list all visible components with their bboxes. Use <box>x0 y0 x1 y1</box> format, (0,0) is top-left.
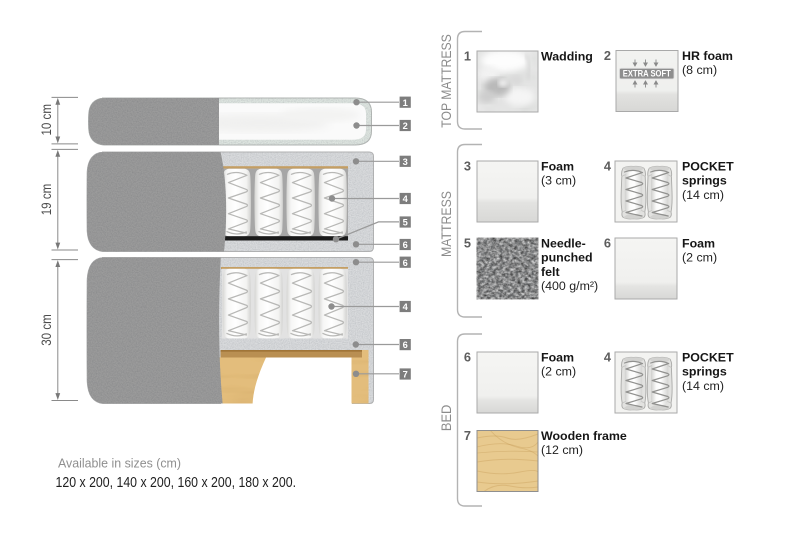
svg-text:5: 5 <box>403 218 408 228</box>
svg-text:Foam: Foam <box>541 351 574 365</box>
svg-text:(2 cm): (2 cm) <box>541 365 576 379</box>
svg-text:TOP MATTRESS: TOP MATTRESS <box>439 34 454 128</box>
svg-text:springs: springs <box>682 365 727 379</box>
svg-text:(14 cm): (14 cm) <box>682 379 724 393</box>
svg-text:6: 6 <box>604 236 611 251</box>
svg-text:Available in sizes (cm): Available in sizes (cm) <box>58 456 181 471</box>
svg-text:(2 cm): (2 cm) <box>682 251 717 265</box>
svg-text:7: 7 <box>403 370 408 380</box>
svg-text:EXTRA SOFT: EXTRA SOFT <box>623 67 671 78</box>
svg-text:4: 4 <box>403 194 409 204</box>
svg-text:1: 1 <box>403 98 408 108</box>
svg-text:6: 6 <box>403 258 408 268</box>
svg-text:(400 g/m²): (400 g/m²) <box>541 279 598 293</box>
svg-text:4: 4 <box>604 350 612 365</box>
svg-text:4: 4 <box>604 159 612 174</box>
svg-text:4: 4 <box>403 302 409 312</box>
svg-text:19 cm: 19 cm <box>38 184 54 216</box>
svg-text:springs: springs <box>682 174 727 188</box>
svg-text:3: 3 <box>403 157 408 167</box>
svg-text:(8 cm): (8 cm) <box>682 63 717 77</box>
svg-text:10 cm: 10 cm <box>38 104 54 136</box>
svg-text:(14 cm): (14 cm) <box>682 188 724 202</box>
svg-text:2: 2 <box>403 121 408 131</box>
svg-text:Foam: Foam <box>682 237 715 251</box>
svg-text:6: 6 <box>464 350 471 365</box>
svg-text:(3 cm): (3 cm) <box>541 174 576 188</box>
svg-text:30 cm: 30 cm <box>38 314 54 346</box>
svg-text:Foam: Foam <box>541 160 574 174</box>
svg-text:6: 6 <box>403 240 408 250</box>
svg-text:BED: BED <box>439 404 454 431</box>
svg-text:POCKET: POCKET <box>682 351 734 365</box>
svg-text:Wadding: Wadding <box>541 50 593 64</box>
svg-text:HR foam: HR foam <box>682 49 733 63</box>
svg-text:Wooden frame: Wooden frame <box>541 429 627 443</box>
svg-text:POCKET: POCKET <box>682 160 734 174</box>
svg-text:120 x 200, 140 x 200, 160 x 20: 120 x 200, 140 x 200, 160 x 200, 180 x 2… <box>56 474 297 491</box>
svg-text:5: 5 <box>464 236 471 251</box>
svg-text:Needle-: Needle- <box>541 237 586 251</box>
svg-text:(12 cm): (12 cm) <box>541 443 583 457</box>
svg-text:MATTRESS: MATTRESS <box>439 191 454 257</box>
svg-text:7: 7 <box>464 428 471 443</box>
svg-text:felt: felt <box>541 265 560 279</box>
svg-text:punched: punched <box>541 251 593 265</box>
svg-text:6: 6 <box>403 340 408 350</box>
svg-text:3: 3 <box>464 159 471 174</box>
svg-text:1: 1 <box>464 49 471 64</box>
svg-text:2: 2 <box>604 48 611 63</box>
